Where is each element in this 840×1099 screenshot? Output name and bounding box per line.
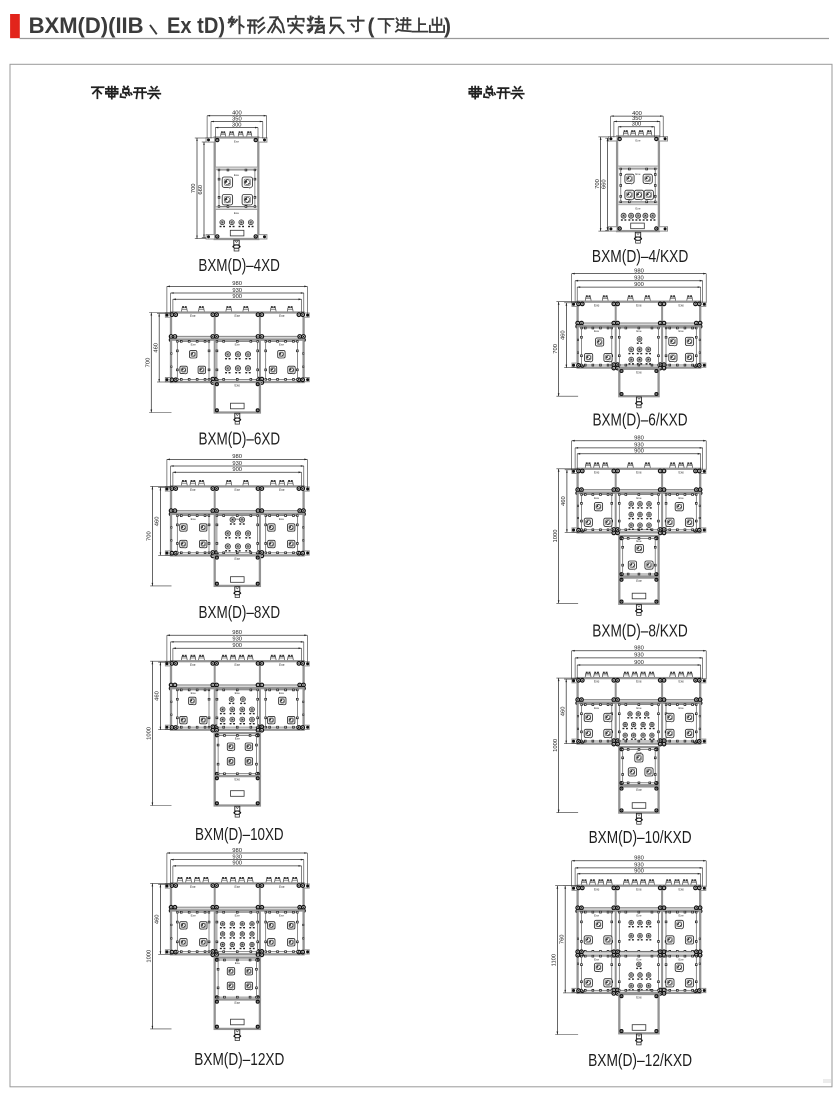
svg-text:Ex tD): Ex tD): [167, 13, 225, 38]
svg-text:Exe: Exe: [594, 957, 600, 961]
svg-text:Exe: Exe: [235, 736, 241, 740]
svg-text:760: 760: [559, 934, 565, 944]
svg-text:Exe: Exe: [636, 887, 642, 891]
svg-text:Exe: Exe: [679, 957, 685, 961]
svg-text:Exe: Exe: [235, 557, 241, 561]
svg-text:(: (: [368, 15, 375, 38]
svg-text:900: 900: [634, 660, 644, 666]
svg-text:Exe: Exe: [234, 140, 240, 144]
svg-text:Exe: Exe: [235, 343, 241, 347]
svg-text:1000: 1000: [147, 950, 153, 963]
svg-text:BXM(D)(IIB: BXM(D)(IIB: [29, 13, 144, 38]
svg-text:660: 660: [198, 185, 204, 195]
svg-text:Exe: Exe: [678, 887, 684, 891]
svg-text:460: 460: [155, 691, 161, 701]
svg-text:Exe: Exe: [636, 996, 642, 1000]
svg-text:Exe: Exe: [235, 885, 241, 889]
svg-text:300: 300: [632, 122, 642, 128]
svg-text:Exe: Exe: [235, 314, 241, 318]
svg-text:Exe: Exe: [636, 496, 642, 500]
svg-text:Exe: Exe: [279, 691, 285, 695]
svg-text:1000: 1000: [147, 727, 153, 740]
svg-text:930: 930: [232, 461, 242, 467]
svg-text:700: 700: [191, 183, 197, 193]
svg-text:Exe: Exe: [594, 303, 600, 307]
svg-text:930: 930: [232, 637, 242, 643]
svg-text:Exe: Exe: [279, 343, 285, 347]
svg-text:Exe: Exe: [190, 314, 196, 318]
svg-text:900: 900: [634, 282, 644, 288]
svg-text:Exe: Exe: [235, 961, 241, 965]
svg-text:Exe: Exe: [191, 517, 197, 521]
svg-text:BXM(D)–8/KXD: BXM(D)–8/KXD: [592, 621, 688, 641]
svg-text:Exe: Exe: [679, 706, 685, 710]
svg-text:Exe: Exe: [636, 706, 642, 710]
svg-text:700: 700: [146, 358, 152, 368]
svg-text:Exe: Exe: [190, 885, 196, 889]
svg-text:BXM(D)–4XD: BXM(D)–4XD: [198, 255, 280, 275]
svg-text:930: 930: [634, 276, 644, 282]
svg-text:980: 980: [634, 436, 644, 442]
svg-text:BXM(D)–10/KXD: BXM(D)–10/KXD: [589, 827, 692, 847]
svg-text:Exe: Exe: [636, 370, 642, 374]
svg-text:Exe: Exe: [636, 680, 642, 684]
svg-text:460: 460: [560, 707, 566, 717]
svg-text:BXM(D)–12/KXD: BXM(D)–12/KXD: [588, 1050, 692, 1070]
svg-text:BXM(D)–8XD: BXM(D)–8XD: [199, 602, 281, 622]
svg-text:Exe: Exe: [279, 517, 285, 521]
svg-text:1100: 1100: [552, 954, 558, 966]
svg-text:900: 900: [232, 294, 242, 300]
svg-text:): ): [444, 15, 451, 38]
svg-text:460: 460: [561, 496, 567, 506]
svg-text:980: 980: [232, 281, 242, 287]
svg-text:Exe: Exe: [191, 343, 197, 347]
svg-text:Exe: Exe: [636, 470, 642, 474]
svg-text:Exe: Exe: [679, 913, 685, 917]
svg-text:Exe: Exe: [279, 885, 285, 889]
svg-text:Exe: Exe: [636, 329, 642, 333]
svg-text:Exe: Exe: [636, 539, 642, 543]
svg-text:1000: 1000: [553, 739, 559, 752]
svg-text:Exe: Exe: [235, 384, 241, 388]
svg-text:Exe: Exe: [235, 488, 241, 492]
svg-text:350: 350: [232, 116, 242, 122]
svg-text:Exe: Exe: [678, 470, 684, 474]
svg-text:Exe: Exe: [635, 172, 641, 176]
svg-text:930: 930: [232, 288, 242, 294]
svg-text:Exe: Exe: [191, 691, 197, 695]
svg-text:700: 700: [147, 531, 153, 541]
svg-text:Exe: Exe: [636, 303, 642, 307]
svg-text:Exe: Exe: [594, 913, 600, 917]
svg-text:BXM(D)–12XD: BXM(D)–12XD: [194, 1049, 284, 1069]
svg-text:700: 700: [595, 179, 601, 189]
svg-text:Exe: Exe: [679, 496, 685, 500]
svg-text:Exe: Exe: [279, 913, 285, 917]
svg-text:Exe: Exe: [635, 139, 641, 143]
svg-text:900: 900: [634, 449, 644, 455]
svg-text:900: 900: [232, 467, 242, 473]
svg-text:930: 930: [232, 854, 242, 860]
svg-text:Exe: Exe: [678, 303, 684, 307]
svg-text:460: 460: [561, 330, 567, 340]
svg-text:Exe: Exe: [234, 211, 240, 215]
svg-text:460: 460: [153, 343, 159, 353]
svg-text:Exe: Exe: [235, 691, 241, 695]
svg-text:Exe: Exe: [279, 314, 285, 318]
svg-text:700: 700: [553, 344, 559, 354]
svg-text:980: 980: [634, 856, 644, 862]
svg-text:Exe: Exe: [235, 913, 241, 917]
svg-text:980: 980: [232, 630, 242, 636]
svg-text:Exe: Exe: [636, 913, 642, 917]
svg-text:Exe: Exe: [594, 470, 600, 474]
svg-text:930: 930: [634, 653, 644, 659]
svg-text:980: 980: [634, 646, 644, 652]
svg-text:Exe: Exe: [279, 663, 285, 667]
svg-text:Exe: Exe: [235, 1001, 241, 1005]
svg-text:BXM(D)–6XD: BXM(D)–6XD: [199, 428, 281, 448]
svg-text:Exe: Exe: [594, 887, 600, 891]
svg-text:660: 660: [602, 179, 608, 189]
svg-text:Exe: Exe: [636, 579, 642, 583]
svg-text:BXM(D)–4/KXD: BXM(D)–4/KXD: [592, 246, 688, 266]
svg-text:Exe: Exe: [636, 957, 642, 961]
svg-text:Exe: Exe: [234, 173, 240, 177]
svg-text:Exe: Exe: [636, 788, 642, 792]
svg-text:Exe: Exe: [190, 488, 196, 492]
svg-text:BXM(D)–10XD: BXM(D)–10XD: [195, 824, 284, 844]
svg-text:Exe: Exe: [679, 329, 685, 333]
svg-text:Exe: Exe: [235, 778, 241, 782]
svg-text:Exe: Exe: [635, 206, 641, 210]
svg-text:900: 900: [232, 861, 242, 867]
svg-text:980: 980: [634, 268, 644, 274]
svg-text:Exe: Exe: [190, 663, 196, 667]
svg-text:Exe: Exe: [235, 663, 241, 667]
svg-text:460: 460: [155, 517, 161, 527]
svg-text:Exe: Exe: [594, 680, 600, 684]
svg-text:1000: 1000: [553, 530, 559, 543]
svg-text:900: 900: [634, 869, 644, 875]
svg-text:300: 300: [232, 122, 242, 128]
svg-text:980: 980: [232, 454, 242, 460]
svg-text:Exe: Exe: [594, 706, 600, 710]
svg-text:Exe: Exe: [678, 680, 684, 684]
svg-text:BXM(D)–6/KXD: BXM(D)–6/KXD: [592, 410, 687, 430]
svg-text:Exe: Exe: [279, 488, 285, 492]
svg-text:900: 900: [232, 643, 242, 649]
svg-text:980: 980: [232, 848, 242, 854]
svg-text:Exe: Exe: [191, 913, 197, 917]
svg-text:460: 460: [155, 914, 161, 924]
svg-text:Exe: Exe: [594, 329, 600, 333]
svg-text:Exe: Exe: [594, 496, 600, 500]
